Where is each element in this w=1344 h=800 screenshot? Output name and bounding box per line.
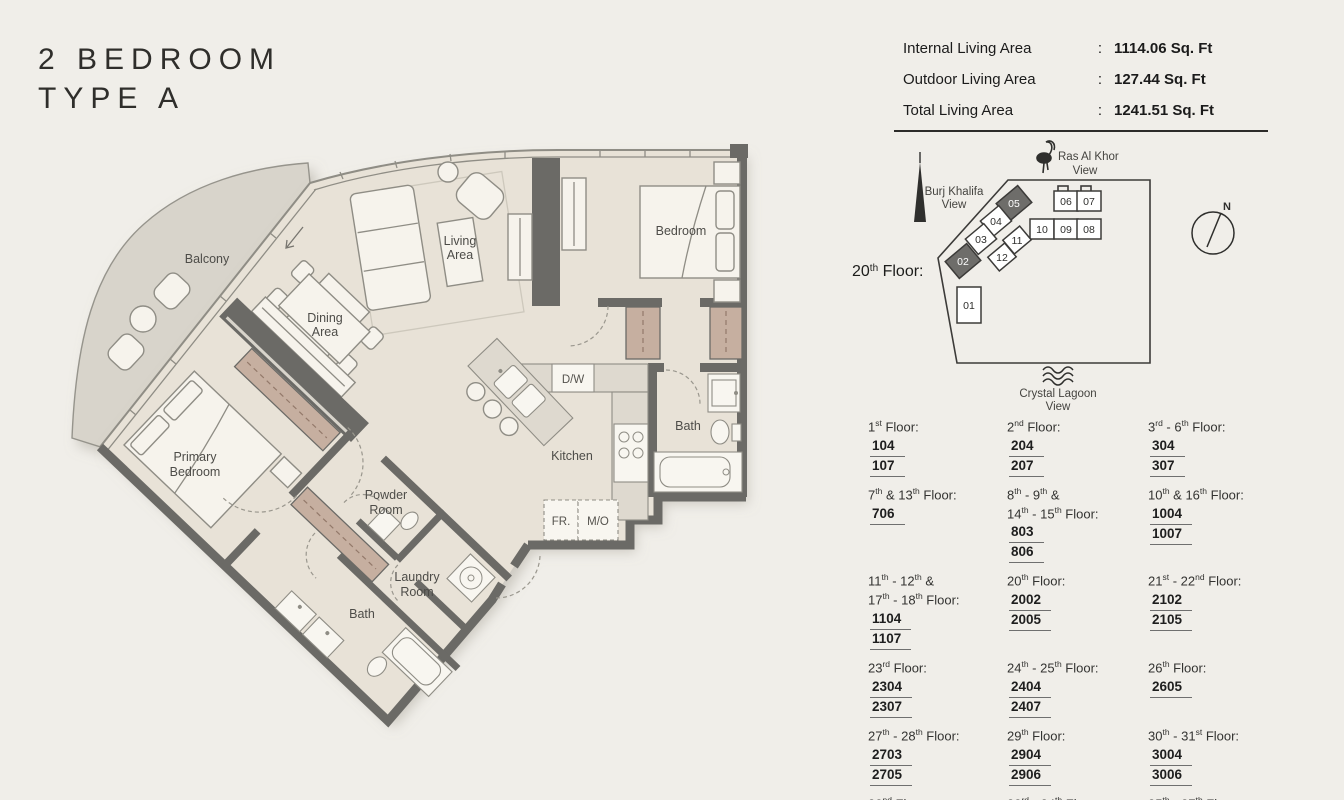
svg-text:03: 03 bbox=[975, 234, 987, 246]
area-label: Internal Living Area bbox=[903, 40, 1086, 57]
floor-entry: 23rd Floor:23042307 bbox=[868, 657, 1007, 718]
floor-entry: 33rd - 34th Floor:33023304 bbox=[1007, 793, 1148, 800]
floor-entry: 35th - 37th Floor:35043506 bbox=[1148, 793, 1278, 800]
area-value: 1241.51 Sq. Ft bbox=[1114, 102, 1214, 119]
nightstand-2 bbox=[714, 280, 740, 302]
floor-entry: 27th - 28th Floor:27032705 bbox=[868, 725, 1007, 786]
view-label-lagoon-2: View bbox=[1046, 401, 1071, 413]
floor-label: 7th & 13th Floor: bbox=[868, 484, 1007, 503]
floor-unit-number[interactable]: 2906 bbox=[1009, 766, 1051, 786]
view-label-burj-2: View bbox=[942, 199, 967, 211]
room-label-powder-2: Room bbox=[369, 503, 402, 517]
floor-unit-number[interactable]: 304 bbox=[1150, 437, 1185, 457]
area-value: 1114.06 Sq. Ft bbox=[1114, 40, 1212, 57]
divider-line bbox=[894, 130, 1268, 132]
room-label-primary-1: Primary bbox=[173, 450, 217, 464]
floor-unit-number[interactable]: 2005 bbox=[1009, 611, 1051, 631]
floor-unit-number[interactable]: 3004 bbox=[1150, 746, 1192, 766]
brochure-page: 2 BEDROOM TYPE A bbox=[0, 0, 1344, 800]
floor-label: 1st Floor: bbox=[868, 416, 1007, 435]
floor-entry: 26th Floor:2605 bbox=[1148, 657, 1278, 718]
keyplan-unit-08[interactable]: 08 bbox=[1077, 219, 1101, 239]
floor-unit-number[interactable]: 2703 bbox=[870, 746, 912, 766]
balcony-table bbox=[130, 306, 156, 332]
room-label-powder-1: Powder bbox=[365, 488, 407, 502]
area-table: Internal Living Area : 1114.06 Sq. Ft Ou… bbox=[903, 33, 1275, 126]
floor-entry: 2nd Floor:204207 bbox=[1007, 416, 1148, 477]
keyplan-unit-10[interactable]: 10 bbox=[1030, 219, 1054, 239]
keyplan-outline bbox=[938, 180, 1150, 363]
floor-unit-number[interactable]: 204 bbox=[1009, 437, 1044, 457]
nightstand bbox=[714, 162, 740, 184]
floor-label: 35th - 37th Floor: bbox=[1148, 793, 1278, 800]
floor-label: 8th - 9th &14th - 15th Floor: bbox=[1007, 484, 1148, 522]
area-separator: : bbox=[1086, 40, 1114, 57]
room-label-primary-2: Bedroom bbox=[170, 465, 221, 479]
floor-unit-number[interactable]: 2102 bbox=[1150, 591, 1192, 611]
svg-text:11: 11 bbox=[1012, 235, 1023, 247]
floor-entry: 8th - 9th &14th - 15th Floor:803806 bbox=[1007, 484, 1148, 564]
floor-label: 23rd Floor: bbox=[868, 657, 1007, 676]
floor-unit-number[interactable]: 806 bbox=[1009, 543, 1044, 563]
keyplan-unit-06[interactable]: 06 bbox=[1054, 191, 1078, 211]
floor-entry: 30th - 31st Floor:30043006 bbox=[1148, 725, 1278, 786]
area-row-outdoor: Outdoor Living Area : 127.44 Sq. Ft bbox=[903, 64, 1275, 95]
floor-unit-number[interactable]: 2904 bbox=[1009, 746, 1051, 766]
floor-entry: 29th Floor:29042906 bbox=[1007, 725, 1148, 786]
area-row-internal: Internal Living Area : 1114.06 Sq. Ft bbox=[903, 33, 1275, 64]
floor-entry: 10th & 16th Floor:10041007 bbox=[1148, 484, 1278, 564]
floor-entry: 32nd Floor:32023204 bbox=[868, 793, 1007, 800]
floor-entry: 1st Floor:104107 bbox=[868, 416, 1007, 477]
floor-label: 2nd Floor: bbox=[1007, 416, 1148, 435]
floor-unit-number[interactable]: 2705 bbox=[870, 766, 912, 786]
floor-label: 21st - 22nd Floor: bbox=[1148, 570, 1278, 589]
svg-text:04: 04 bbox=[990, 216, 1002, 228]
area-separator: : bbox=[1086, 102, 1114, 119]
floor-label: 10th & 16th Floor: bbox=[1148, 484, 1278, 503]
room-label-fr: FR. bbox=[552, 516, 571, 528]
svg-text:08: 08 bbox=[1083, 224, 1095, 236]
flamingo-icon bbox=[1037, 141, 1054, 173]
floor-unit-number[interactable]: 2304 bbox=[870, 678, 912, 698]
floor-label: 3rd - 6th Floor: bbox=[1148, 416, 1278, 435]
keyplan-unit-09[interactable]: 09 bbox=[1054, 219, 1078, 239]
room-label-bath-main: Bath bbox=[349, 607, 375, 621]
floor-unit-number[interactable]: 706 bbox=[870, 505, 905, 525]
floor-label: 33rd - 34th Floor: bbox=[1007, 793, 1148, 800]
room-label-living-1: Living bbox=[444, 234, 477, 248]
room-label-mo: M/O bbox=[587, 516, 609, 528]
floor-label: 11th - 12th &17th - 18th Floor: bbox=[868, 570, 1007, 608]
compass-north-label: N bbox=[1223, 201, 1231, 213]
svg-text:01: 01 bbox=[963, 300, 975, 312]
floor-label: 29th Floor: bbox=[1007, 725, 1148, 744]
floor-unit-number[interactable]: 2404 bbox=[1009, 678, 1051, 698]
view-label-ras-al-khor-2: View bbox=[1073, 165, 1098, 177]
floor-label: 24th - 25th Floor: bbox=[1007, 657, 1148, 676]
svg-text:09: 09 bbox=[1060, 224, 1072, 236]
floor-label: 30th - 31st Floor: bbox=[1148, 725, 1278, 744]
svg-text:07: 07 bbox=[1083, 196, 1095, 208]
floor-entry: 20th Floor:20022005 bbox=[1007, 570, 1148, 650]
room-label-living-2: Area bbox=[447, 248, 473, 262]
floor-unit-number[interactable]: 104 bbox=[870, 437, 905, 457]
floor-unit-number[interactable]: 2105 bbox=[1150, 611, 1192, 631]
svg-text:06: 06 bbox=[1060, 196, 1072, 208]
svg-text:02: 02 bbox=[957, 256, 969, 268]
floor-label: 27th - 28th Floor: bbox=[868, 725, 1007, 744]
room-label-balcony: Balcony bbox=[185, 252, 230, 266]
compass-icon: N bbox=[1192, 201, 1234, 254]
room-label-dw: D/W bbox=[562, 374, 585, 386]
floor-unit-number[interactable]: 1004 bbox=[1150, 505, 1192, 525]
floor-entry: 11th - 12th &17th - 18th Floor:11041107 bbox=[868, 570, 1007, 650]
area-separator: : bbox=[1086, 71, 1114, 88]
svg-text:05: 05 bbox=[1008, 198, 1020, 210]
waves-icon bbox=[1043, 367, 1073, 385]
area-label: Total Living Area bbox=[903, 102, 1086, 119]
floor-plan-drawing: Balcony Living Area Dining Area Bedroom … bbox=[0, 0, 830, 800]
keyplan-unit-07[interactable]: 07 bbox=[1077, 191, 1101, 211]
floor-unit-number[interactable]: 803 bbox=[1009, 523, 1044, 543]
floor-unit-number[interactable]: 2002 bbox=[1009, 591, 1051, 611]
floor-label: 26th Floor: bbox=[1148, 657, 1278, 676]
floor-unit-number[interactable]: 1107 bbox=[870, 630, 911, 650]
floor-unit-number[interactable]: 207 bbox=[1009, 457, 1044, 477]
building-key-plan: 05 06 07 04 03 10 09 08 11 12 02 01 Ra bbox=[840, 136, 1280, 414]
room-label-laundry-1: Laundry bbox=[394, 570, 440, 584]
view-label-lagoon: Crystal Lagoon bbox=[1019, 388, 1096, 400]
toilet bbox=[711, 420, 729, 444]
floor-entry: 21st - 22nd Floor:21022105 bbox=[1148, 570, 1278, 650]
floor-unit-number[interactable]: 2307 bbox=[870, 698, 912, 718]
room-label-dining-2: Area bbox=[312, 325, 338, 339]
keyplan-unit-01[interactable]: 01 bbox=[957, 287, 981, 323]
area-value: 127.44 Sq. Ft bbox=[1114, 71, 1206, 88]
floor-unit-number[interactable]: 307 bbox=[1150, 457, 1185, 477]
floor-entry: 24th - 25th Floor:24042407 bbox=[1007, 657, 1148, 718]
floor-entry: 7th & 13th Floor:706 bbox=[868, 484, 1007, 564]
floor-unit-number[interactable]: 3006 bbox=[1150, 766, 1192, 786]
floor-entry: 3rd - 6th Floor:304307 bbox=[1148, 416, 1278, 477]
room-label-bath-ensuite: Bath bbox=[675, 419, 701, 433]
view-label-burj: Burj Khalifa bbox=[925, 186, 984, 198]
keyplan-floor-label: 20th Floor: bbox=[852, 263, 923, 280]
svg-text:12: 12 bbox=[996, 252, 1008, 264]
area-row-total: Total Living Area : 1241.51 Sq. Ft bbox=[903, 95, 1275, 126]
floor-unit-number[interactable]: 1007 bbox=[1150, 525, 1192, 545]
floor-unit-number[interactable]: 1104 bbox=[870, 610, 911, 630]
floor-label: 20th Floor: bbox=[1007, 570, 1148, 589]
floor-unit-number[interactable]: 107 bbox=[870, 457, 905, 477]
room-label-dining-1: Dining bbox=[307, 311, 342, 325]
floors-grid: 1st Floor:1041072nd Floor:2042073rd - 6t… bbox=[868, 416, 1278, 800]
svg-text:10: 10 bbox=[1036, 224, 1048, 236]
floor-label: 32nd Floor: bbox=[868, 793, 1007, 800]
floor-unit-number[interactable]: 2407 bbox=[1009, 698, 1051, 718]
area-label: Outdoor Living Area bbox=[903, 71, 1086, 88]
floor-unit-number[interactable]: 2605 bbox=[1150, 678, 1192, 698]
view-label-ras-al-khor: Ras Al Khor bbox=[1058, 151, 1119, 163]
room-label-bedroom: Bedroom bbox=[656, 224, 707, 238]
room-label-kitchen: Kitchen bbox=[551, 449, 593, 463]
side-table bbox=[438, 162, 458, 182]
room-label-laundry-2: Room bbox=[400, 585, 433, 599]
